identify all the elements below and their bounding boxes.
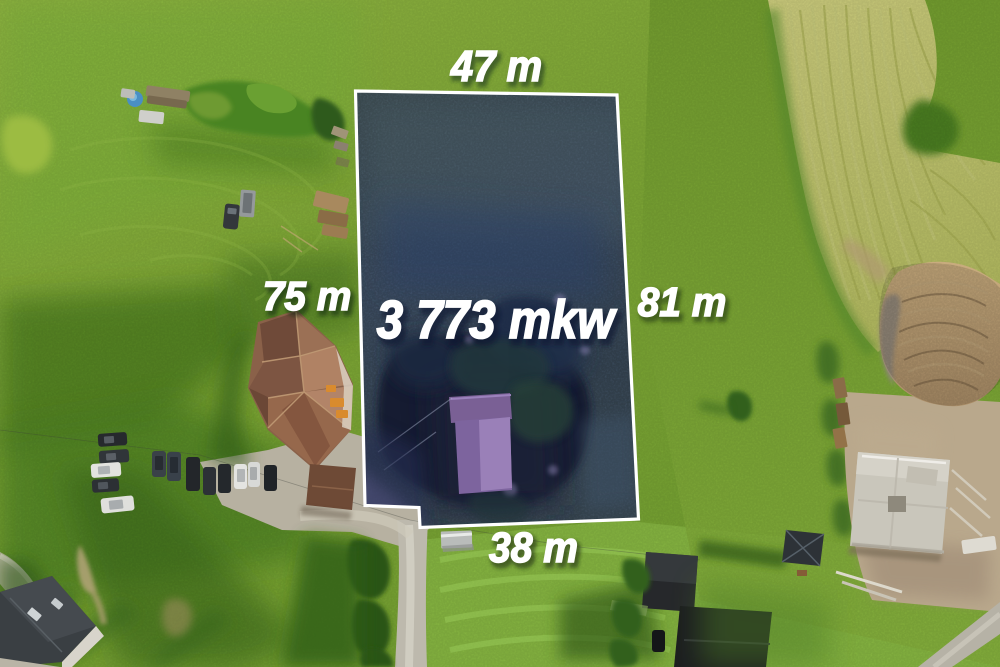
svg-text:3 773 mkw: 3 773 mkw xyxy=(377,289,618,350)
svg-text:47 m: 47 m xyxy=(450,41,542,90)
svg-text:75 m: 75 m xyxy=(263,274,352,319)
svg-text:38 m: 38 m xyxy=(489,523,578,571)
svg-text:81 m: 81 m xyxy=(638,280,727,325)
